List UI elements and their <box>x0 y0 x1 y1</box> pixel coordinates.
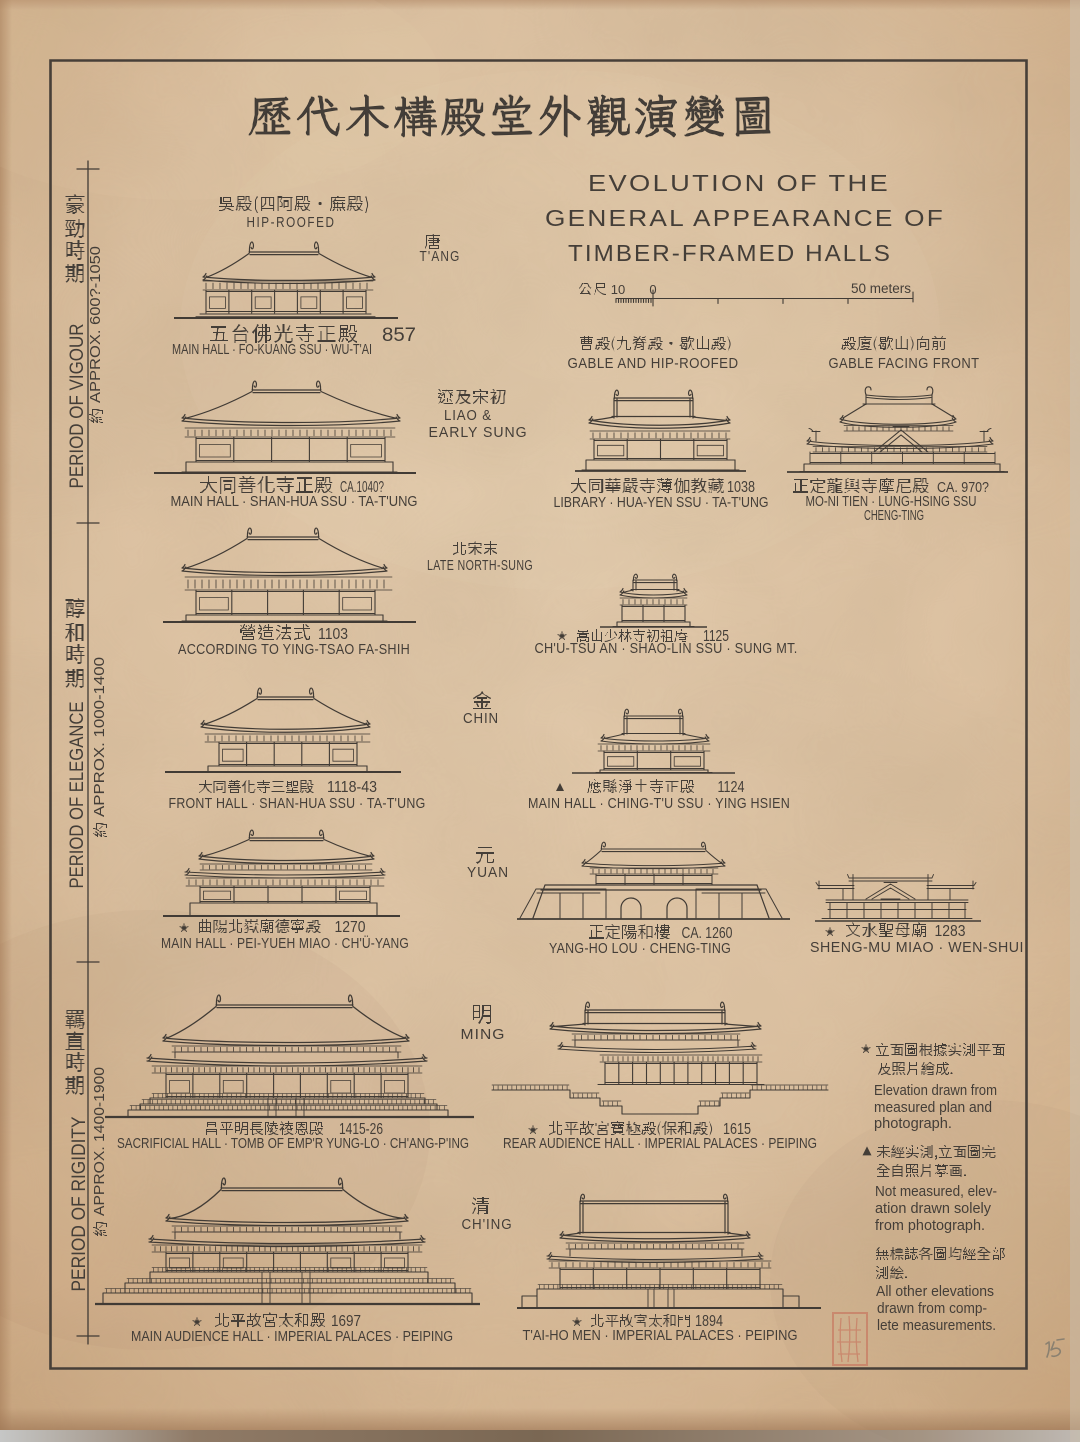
svg-text:Not measured, elev-: Not measured, elev- <box>875 1183 997 1200</box>
svg-text:ACCORDING TO YING-TSAO FA-SHI: ACCORDING TO YING-TSAO FA-SHIH <box>178 642 410 658</box>
svg-text:50 meters: 50 meters <box>851 281 911 296</box>
svg-text:MAIN HALL · SHAN-HUA SSU ·: MAIN HALL · SHAN-HUA SSU · TA-T'UNG <box>171 494 418 510</box>
svg-text:10: 10 <box>611 282 625 297</box>
svg-text:MING: MING <box>461 1026 506 1043</box>
svg-text:lete measurements.: lete measurements. <box>877 1317 996 1334</box>
svg-text:LIAO &: LIAO & <box>444 407 492 424</box>
svg-text:PERIOD OF RIGIDITY: PERIOD OF RIGIDITY <box>69 1116 90 1291</box>
svg-text:measured plan and: measured plan and <box>874 1099 992 1116</box>
svg-text:Elevation drawn from: Elevation drawn from <box>874 1082 997 1099</box>
svg-text:APPROX. 1400-1900: APPROX. 1400-1900 <box>91 1067 108 1216</box>
svg-text:REAR AUDIENCE HALL · IMPERIAL: REAR AUDIENCE HALL · IMPERIAL PALACES · … <box>503 1136 817 1152</box>
svg-text:PERIOD OF ELEGANCE: PERIOD OF ELEGANCE <box>67 702 88 889</box>
svg-text:APPROX. 1000-1400: APPROX. 1000-1400 <box>91 657 108 817</box>
svg-text:1038: 1038 <box>727 479 755 496</box>
svg-text:photograph.: photograph. <box>874 1115 952 1132</box>
svg-text:FRONT HALL · SHAN-HUA SSU ·: FRONT HALL · SHAN-HUA SSU · TA-T'UNG <box>169 796 426 812</box>
svg-text:All other elevations: All other elevations <box>876 1283 994 1300</box>
svg-text:APPROX. 600?-1050: APPROX. 600?-1050 <box>87 246 104 403</box>
svg-text:from photograph.: from photograph. <box>875 1217 985 1234</box>
svg-text:1270: 1270 <box>335 919 366 936</box>
svg-text:EARLY SUNG: EARLY SUNG <box>429 424 528 441</box>
svg-text:T'AI-HO MEN · IMPERIAL PALAC: T'AI-HO MEN · IMPERIAL PALACES · PEIPING <box>523 1328 798 1344</box>
svg-text:1283: 1283 <box>935 923 966 940</box>
svg-text:1118-43: 1118-43 <box>327 779 377 796</box>
svg-text:HIP-ROOFED: HIP-ROOFED <box>247 214 336 231</box>
svg-text:EVOLUTION OF THE: EVOLUTION OF THE <box>588 170 890 196</box>
svg-text:MAIN AUDIENCE HALL · IMPERIAL: MAIN AUDIENCE HALL · IMPERIAL PALACES · … <box>131 1329 453 1345</box>
svg-text:LATE NORTH-SUNG: LATE NORTH-SUNG <box>427 557 533 574</box>
svg-text:CH'U-TSU AN · SHAO-LIN SSU ·: CH'U-TSU AN · SHAO-LIN SSU · SUNG MT. <box>535 641 798 657</box>
svg-text:MAIN HALL · PEI-YUEH MIAO ·: MAIN HALL · PEI-YUEH MIAO · CH'Ü-YANG <box>161 934 409 952</box>
svg-text:LIBRARY · HUA-YEN SSU · TA-T'U: LIBRARY · HUA-YEN SSU · TA-T'UNG <box>554 495 769 511</box>
svg-text:1124: 1124 <box>718 779 745 796</box>
svg-text:GABLE FACING FRONT: GABLE FACING FRONT <box>829 355 980 372</box>
svg-text:857: 857 <box>382 325 416 346</box>
svg-text:MAIN HALL · CHING-T'U SSU ·: MAIN HALL · CHING-T'U SSU · YING HSIEN <box>528 796 790 812</box>
svg-text:YANG-HO LOU · CHENG-TING: YANG-HO LOU · CHENG-TING <box>549 941 731 957</box>
svg-text:CA. 1260: CA. 1260 <box>682 925 733 942</box>
svg-text:drawn from comp-: drawn from comp- <box>877 1300 987 1317</box>
svg-text:SACRIFICIAL HALL · TOMB OF EM: SACRIFICIAL HALL · TOMB OF EMP'R YUNG-LO… <box>117 1136 469 1152</box>
svg-text:CH'ING: CH'ING <box>462 1216 513 1233</box>
svg-text:GENERAL APPEARANCE OF: GENERAL APPEARANCE OF <box>545 205 945 231</box>
svg-text:GABLE AND HIP-ROOFED: GABLE AND HIP-ROOFED <box>568 355 739 372</box>
svg-text:CHENG-TING: CHENG-TING <box>864 508 924 524</box>
svg-text:T'ANG: T'ANG <box>420 248 461 265</box>
svg-text:1697: 1697 <box>331 1313 361 1330</box>
svg-text:CHIN: CHIN <box>463 710 499 727</box>
svg-text:MAIN HALL · FO-KUANG SSU · WU-: MAIN HALL · FO-KUANG SSU · WU-T'AI <box>172 342 372 358</box>
svg-text:YUAN: YUAN <box>467 864 509 881</box>
svg-text:SHENG-MU MIAO · WEN-SHUI: SHENG-MU MIAO · WEN-SHUI <box>810 940 1024 956</box>
svg-text:PERIOD OF VIGOUR: PERIOD OF VIGOUR <box>67 324 88 489</box>
svg-text:TIMBER-FRAMED HALLS: TIMBER-FRAMED HALLS <box>568 240 892 266</box>
svg-text:1103: 1103 <box>318 626 348 643</box>
svg-text:ation drawn solely: ation drawn solely <box>875 1200 991 1217</box>
